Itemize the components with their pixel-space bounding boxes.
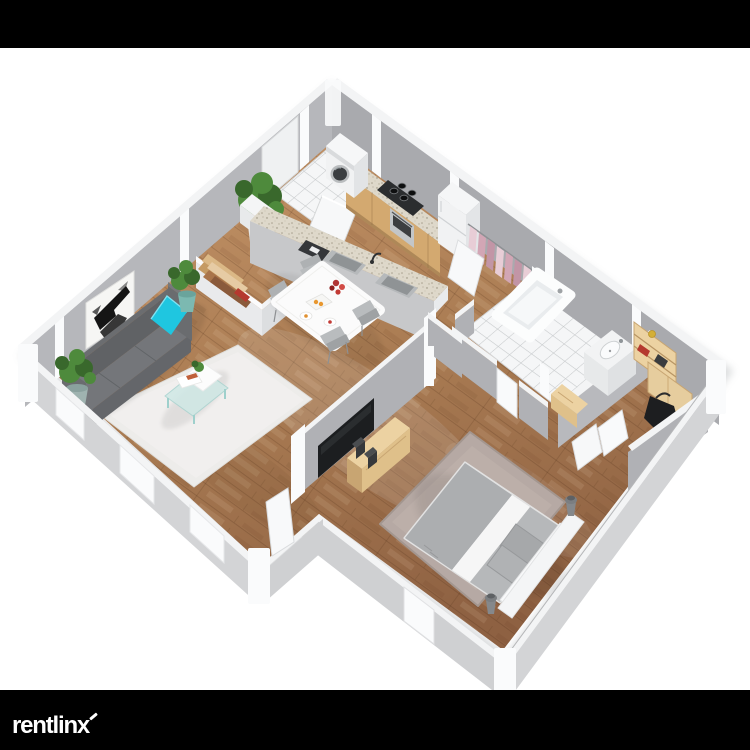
tub-faucet: [558, 289, 563, 294]
wall-pilaster: [300, 105, 309, 170]
tv-wall-cap-sw: [291, 424, 305, 504]
floorplan-3d-render: [0, 0, 750, 750]
rentlinx-logo-text: rentlinx: [12, 712, 89, 739]
rentlinx-logo: rentlinx: [12, 714, 89, 738]
bottom-letterbox-bar: rentlinx: [0, 690, 750, 750]
gold-item: [649, 331, 656, 338]
wall-pilaster: [372, 114, 381, 178]
rentlinx-logo-accent-mark: [89, 712, 98, 720]
top-letterbox-bar: [0, 0, 750, 48]
sink-faucet: [619, 339, 623, 343]
floorplan-image: rentlinx: [0, 0, 750, 750]
